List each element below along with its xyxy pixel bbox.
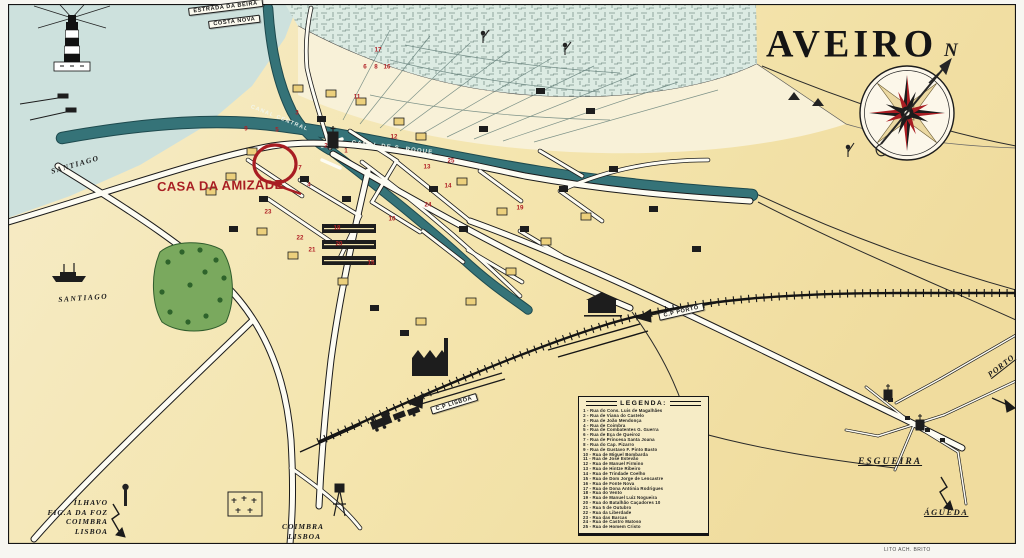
legend-item-name: Rua de Homem Cristo — [592, 525, 640, 530]
legend-title: LEGENDA: — [620, 400, 667, 407]
map-title: AVEIRO — [766, 21, 937, 67]
legend: LEGENDA: 1 Rua do Cons. Luis de Magalhãe… — [578, 396, 709, 536]
destination-line: ÍLHAVO — [36, 498, 108, 508]
city-park — [153, 243, 232, 331]
destinations-southwest: ÍLHAVO FIG.A DA FOZ COIMBRA LISBOA — [36, 498, 108, 536]
aveiro-map-illustration — [0, 0, 1024, 558]
legend-item: 25 Rua de Homem Cristo — [583, 525, 704, 530]
barracks — [322, 224, 376, 265]
destinations-south: COIMBRA LISBOA — [282, 522, 324, 542]
destination-line: COIMBRA — [282, 522, 324, 532]
destination-line: LISBOA — [36, 527, 108, 537]
legend-header: LEGENDA: — [583, 400, 704, 407]
esgueira-label: ESGUEIRA — [858, 457, 922, 467]
printer-credit: LITO ACH. BRITO — [884, 547, 931, 553]
casa-da-amizade-label: CASA DA AMIZADE — [157, 177, 284, 194]
agueda-label: ÁGUEDA — [924, 507, 968, 517]
legend-item-number: 25 — [583, 525, 592, 530]
legend-rule — [670, 401, 701, 405]
legend-list: 1 Rua do Cons. Luis de Magalhães 2 Rua d… — [583, 409, 704, 530]
destination-line: LISBOA — [282, 532, 324, 542]
destination-line: COIMBRA — [36, 517, 108, 527]
compass-north-label: N — [944, 40, 958, 62]
legend-rule — [586, 401, 617, 405]
map-canvas: AVEIRO CASA DA AMIZADE N CANAL CENTRAL C… — [0, 0, 1024, 558]
destination-line: FIG.A DA FOZ — [36, 508, 108, 518]
